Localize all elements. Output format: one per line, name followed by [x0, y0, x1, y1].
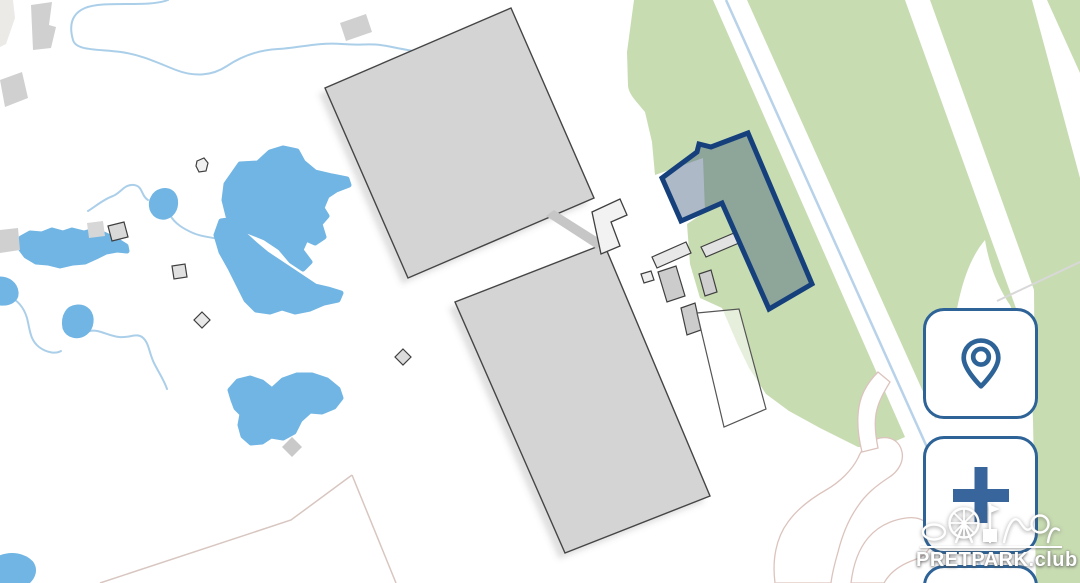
lake-edge-west — [0, 279, 16, 303]
park-map-screen: PRETPARK.club — [0, 0, 1080, 583]
zoom-in-button[interactable] — [923, 436, 1038, 554]
lake-drop — [151, 191, 175, 218]
locate-button[interactable] — [923, 308, 1038, 419]
minus-icon — [951, 565, 1011, 583]
lake-corner-sw — [0, 556, 33, 583]
plus-icon — [951, 465, 1011, 525]
pond-small — [64, 307, 91, 336]
zoom-out-button[interactable] — [923, 565, 1038, 583]
map-canvas[interactable] — [0, 0, 1080, 583]
map-pin-icon — [954, 335, 1008, 393]
